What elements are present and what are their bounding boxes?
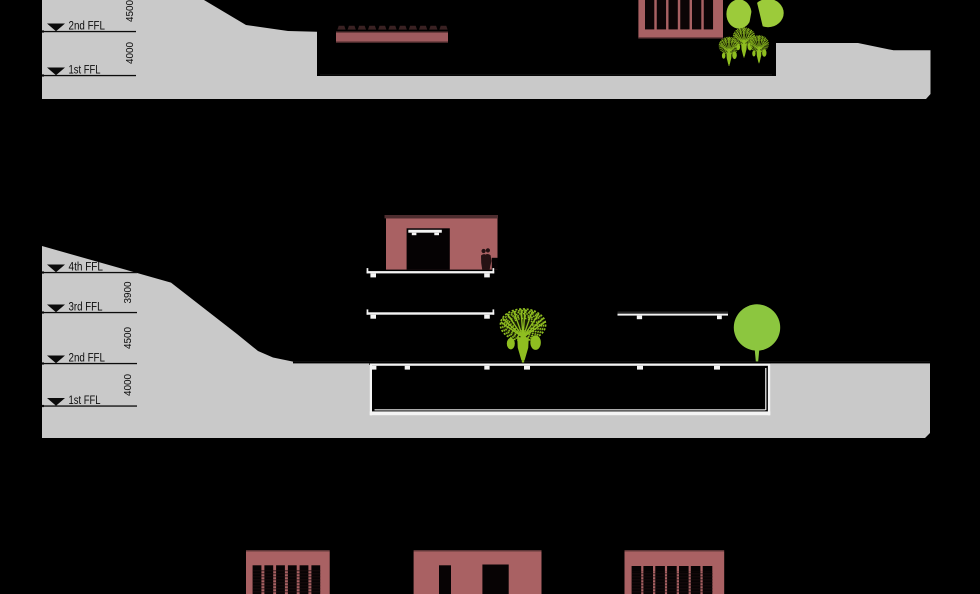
svg-text:4000: 4000: [125, 42, 136, 64]
svg-text:4500: 4500: [123, 327, 134, 349]
svg-text:1st FFL: 1st FFL: [69, 395, 101, 407]
svg-text:3900: 3900: [123, 281, 134, 303]
svg-text:2nd FFL: 2nd FFL: [69, 21, 106, 33]
svg-text:4000: 4000: [123, 374, 134, 396]
svg-text:4th FFL: 4th FFL: [69, 262, 104, 274]
svg-text:3rd FFL: 3rd FFL: [69, 302, 104, 314]
svg-text:2nd FFL: 2nd FFL: [69, 353, 106, 365]
svg-text:1st FFL: 1st FFL: [69, 65, 101, 77]
svg-text:4500: 4500: [125, 0, 136, 22]
